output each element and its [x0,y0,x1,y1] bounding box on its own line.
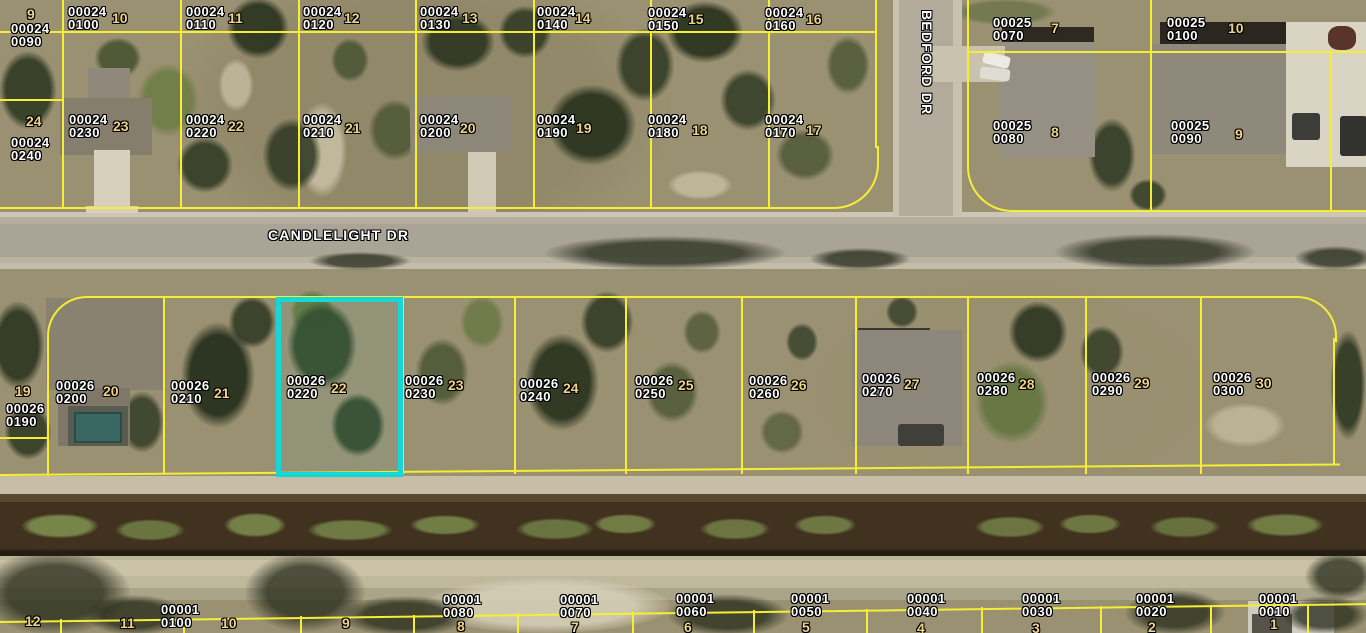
lot-number-26: 26 [791,378,807,392]
parcel-label-00001-0010: 000010010 [1259,592,1298,618]
lot-number-17: 17 [806,123,822,137]
lot-number-28: 28 [1019,377,1035,391]
tree-shadow [1295,246,1366,270]
parcel-boundary-line [415,0,417,207]
parcel-label-00001-0020: 000010020 [1136,592,1175,618]
parcel-boundary-line [967,297,969,474]
parcel-label-00001-0050: 000010050 [791,592,830,618]
parcel-label-00024-0140: 000240140 [537,5,576,31]
parcel-label-00025-0070: 000250070 [993,16,1032,42]
parcel-label-00001-0030: 000010030 [1022,592,1061,618]
parcel-label-00024-0200: 000240200 [420,113,459,139]
parcel-label-00001-0060: 000010060 [676,592,715,618]
parcel-label-00024-0160: 000240160 [765,6,804,32]
lot-number-20: 20 [460,121,476,135]
parcel-boundary-line [866,609,868,633]
lot-number-10: 10 [1228,21,1244,35]
parcel-label-00024-0120: 000240120 [303,5,342,31]
lot-number-3: 3 [1032,621,1040,633]
parcel-boundary-line [533,0,535,207]
parcel-boundary-line [981,607,983,633]
tree-shadow [1305,552,1366,600]
lot-number-15: 15 [688,12,704,26]
parcel-label-00026-0260: 000260260 [749,374,788,400]
parcel-label-00024-0100: 000240100 [68,5,107,31]
driveway [468,152,496,212]
aerial-map[interactable]: CANDLELIGHT DR BEDFORD DR 000240090 9 00… [0,0,1366,633]
tree-shadow [810,248,910,270]
parcel-boundary-line [1100,606,1102,633]
lot-number-19: 19 [576,121,592,135]
parcel-label-00024-0210: 000240210 [303,113,342,139]
parcel-label-00026-0250: 000260250 [635,374,674,400]
parcel-boundary-line [0,207,808,209]
canal-north-bank [0,476,1366,496]
parcel-boundary-line [1307,604,1309,633]
parcel-label-00024-0220: 000240220 [186,113,225,139]
parcel-label-00026-0240: 000260240 [520,377,559,403]
lot-number-8: 8 [457,619,465,633]
parcel-label-00001-0080: 000010080 [443,593,482,619]
parcel-boundary-line [96,296,1288,298]
parcel-boundary-line [1200,297,1202,474]
lot-number-19: 19 [15,384,31,398]
lot-number-14: 14 [575,11,591,25]
parcel-boundary-line [0,99,63,101]
lot-number-9: 9 [1235,127,1243,141]
parcel-label-00026-0270: 000260270 [862,372,901,398]
lot-number-2: 2 [1148,620,1156,633]
parcel-label-00025-0080: 000250080 [993,119,1032,145]
lot-number-7: 7 [1051,21,1059,35]
parcel-boundary-line [514,297,516,474]
parcel-label-00024-0110: 000240110 [186,5,225,31]
lot-number-8: 8 [1051,125,1059,139]
lot-number-13: 13 [462,11,478,25]
lot-number-24: 24 [26,114,42,128]
street-label-candlelight: CANDLELIGHT DR [268,228,409,242]
parcel-label-00026-0230: 000260230 [405,374,444,400]
lot-number-9: 9 [342,616,350,630]
parcel-boundary-line [753,610,755,633]
parcel-label-00026-0200: 000260200 [56,379,95,405]
parcel-label-00001-0040: 000010040 [907,592,946,618]
lot-number-5: 5 [802,620,810,633]
lot-number-7: 7 [571,620,579,633]
lot-number-4: 4 [917,621,925,633]
lot-number-24: 24 [563,381,579,395]
drainage-canal [0,494,1366,560]
parcel-boundary-line [413,615,415,633]
lot-number-1: 1 [1270,617,1278,631]
lot-number-12: 12 [344,11,360,25]
car [1340,116,1366,156]
parcel-label-00026-0220: 000260220 [287,374,326,400]
parcel-label-00026-0300: 000260300 [1213,371,1252,397]
parcel-boundary-line [855,297,857,474]
parcel-boundary-line [1085,297,1087,474]
tree-shadow [1055,234,1255,270]
lot-number-29: 29 [1134,376,1150,390]
lot-number-9: 9 [27,7,35,21]
lot-number-22: 22 [331,381,347,395]
lot-number-25: 25 [678,378,694,392]
driveway [94,150,130,212]
parcel-label-00001-0100: 000010100 [161,603,200,629]
tree-shadow [310,252,410,270]
parcel-boundary-line [300,616,302,633]
lot-number-12: 12 [25,614,41,628]
swimming-pool [74,412,122,443]
parcel-label-00026-0290: 000260290 [1092,371,1131,397]
lot-number-21: 21 [214,386,230,400]
parcel-boundary-line [741,297,743,474]
parcel-boundary-line [1210,605,1212,633]
parcel-label-00025-0090: 000250090 [1171,119,1210,145]
lot-number-16: 16 [806,12,822,26]
lot-number-22: 22 [228,119,244,133]
tree-shadow [545,236,785,270]
parcel-label-00024-0190: 000240190 [537,113,576,139]
parcel-boundary-line [62,0,64,207]
parcel-boundary-line [1150,0,1152,211]
parcel-label-00024-0230: 000240230 [69,113,108,139]
parcel-boundary-line [967,51,1366,53]
parcel-label-00026-0190: 000260190 [6,402,45,428]
lot-number-21: 21 [345,121,361,135]
lot-number-6: 6 [684,620,692,633]
parcel-label-00001-0070: 000010070 [560,593,599,619]
parcel-boundary-line [517,613,519,633]
parcel-boundary-line [298,0,300,207]
lot-number-18: 18 [692,123,708,137]
parcel-label-00024-0130: 000240130 [420,5,459,31]
car [898,424,944,446]
parcel-boundary-line [1333,338,1335,464]
parcel-boundary-line [875,0,877,148]
street-label-bedford: BEDFORD DR [920,10,934,115]
lot-number-10: 10 [221,616,237,630]
car [1292,113,1320,140]
lot-number-23: 23 [448,378,464,392]
lot-number-11: 11 [120,616,135,630]
tree-shadow [1328,26,1356,50]
lot-number-27: 27 [904,377,920,391]
parcel-label-00024-0150: 000240150 [648,6,687,32]
parcel-label-00026-0280: 000260280 [977,371,1016,397]
parcel-boundary-line [180,0,182,207]
parcel-label-00026-0210: 000260210 [171,379,210,405]
parcel-boundary-line [163,297,165,474]
lot-number-23: 23 [113,119,129,133]
lot-number-10: 10 [112,11,128,25]
parcel-label-00024-0090: 000240090 [11,22,50,48]
parcel-boundary-line [625,297,627,474]
parcel-boundary-line [967,0,969,152]
parcel-boundary-line [1021,210,1366,212]
parcel-boundary-line [632,612,634,633]
lot-number-11: 11 [228,11,243,25]
parcel-label-00024-0170: 000240170 [765,113,804,139]
lot-number-20: 20 [103,384,119,398]
parcel-label-00025-0100: 000250100 [1167,16,1206,42]
parcel-boundary-line [47,338,49,476]
parcel-label-00024-0240: 000240240 [11,136,50,162]
parcel-boundary-line [1330,51,1332,212]
lot-number-30: 30 [1256,376,1272,390]
parcel-boundary-line [60,619,62,633]
parcel-label-00024-0180: 000240180 [648,113,687,139]
parcel-boundary-line [0,437,48,439]
